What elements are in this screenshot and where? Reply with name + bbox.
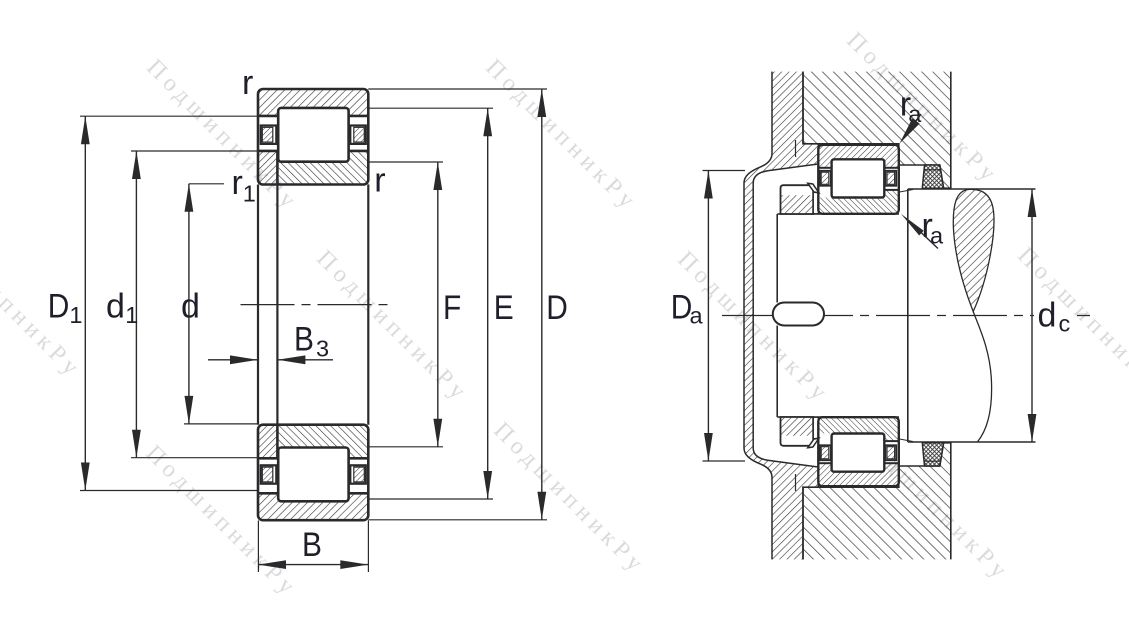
svg-text:a: a	[930, 223, 944, 249]
svg-text:r: r	[232, 164, 243, 202]
svg-text:c: c	[1059, 311, 1071, 337]
svg-text:ПодшипникРу: ПодшипникРу	[311, 245, 474, 408]
svg-text:E: E	[494, 288, 514, 326]
svg-text:3: 3	[316, 336, 329, 362]
svg-text:1: 1	[69, 302, 82, 328]
svg-text:r: r	[242, 64, 253, 102]
svg-text:ПодшипникРу: ПодшипникРу	[480, 54, 643, 217]
svg-text:D: D	[48, 287, 70, 325]
svg-text:F: F	[443, 288, 461, 326]
svg-text:B: B	[294, 320, 314, 358]
svg-text:d: d	[181, 288, 200, 326]
svg-text:D: D	[546, 288, 568, 326]
svg-text:1: 1	[125, 302, 138, 328]
svg-text:a: a	[690, 303, 704, 329]
svg-text:r: r	[374, 162, 385, 200]
svg-text:B: B	[302, 525, 322, 563]
svg-text:d: d	[106, 288, 125, 326]
svg-text:1: 1	[243, 180, 256, 206]
svg-text:ПодшипникРу: ПодшипникРу	[488, 417, 651, 580]
svg-text:d: d	[1038, 297, 1057, 335]
svg-text:ПодшипникРу: ПодшипникРу	[1012, 242, 1129, 405]
